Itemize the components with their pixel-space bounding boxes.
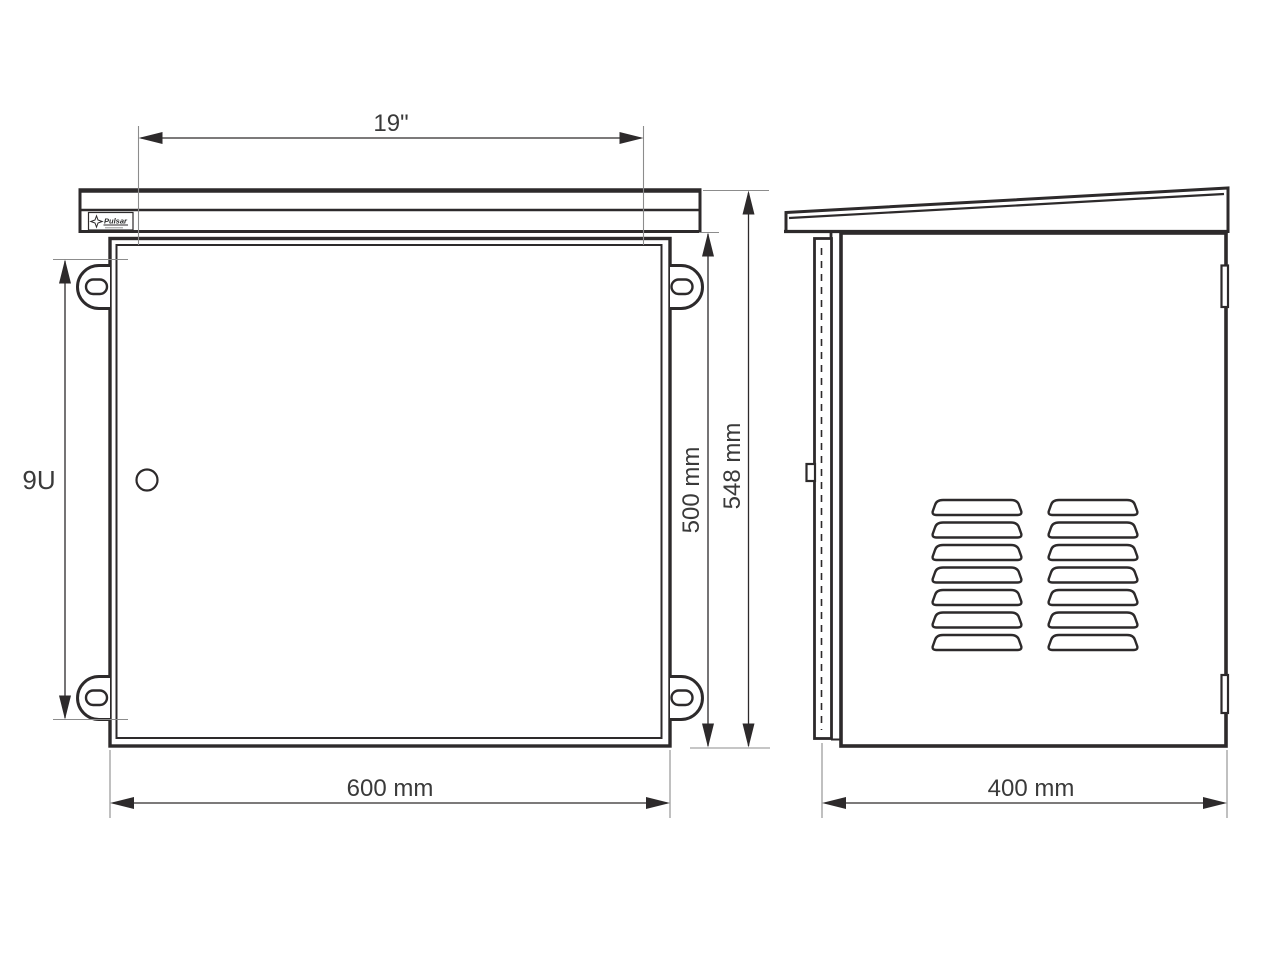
side-door-edge [815, 239, 832, 739]
arrow-right-icon [1203, 797, 1227, 809]
vent-slot [1049, 545, 1138, 560]
vent-slot [1049, 613, 1138, 628]
ear-slot-bottom-left [86, 691, 107, 706]
arrow-right-icon [646, 797, 670, 809]
arrow-up-icon [702, 233, 714, 257]
vent-slot [933, 590, 1022, 605]
label-rack-units: 9U [22, 465, 55, 495]
ear-slot-top-right [672, 280, 693, 295]
vent-slot [933, 635, 1022, 650]
arrow-left-icon [139, 132, 163, 144]
arrow-left-icon [110, 797, 134, 809]
door-latch [807, 464, 816, 481]
enclosure-dimension-drawing: Pulsar [0, 0, 1280, 960]
side-body-outline [841, 233, 1226, 746]
side-view [784, 188, 1228, 746]
front-view: Pulsar [77, 191, 702, 747]
vent-slot [1049, 500, 1138, 515]
arrow-up-icon [743, 191, 755, 215]
vent-slot [1049, 568, 1138, 583]
label-overall-depth: 400 mm [988, 775, 1075, 802]
arrow-right-icon [620, 132, 644, 144]
vent-slot [933, 523, 1022, 538]
technical-drawing-canvas: Pulsar [0, 0, 1280, 960]
arrow-up-icon [59, 260, 71, 284]
label-door-height: 500 mm [678, 447, 705, 534]
arrow-down-icon [59, 696, 71, 720]
vent-slot [1049, 635, 1138, 650]
arrow-down-icon [702, 724, 714, 748]
logo-text: Pulsar [104, 217, 128, 226]
front-door-panel [117, 245, 662, 738]
arrow-left-icon [822, 797, 846, 809]
label-overall-width: 600 mm [347, 775, 434, 802]
vent-slot [933, 613, 1022, 628]
vent-slot [933, 545, 1022, 560]
ear-slot-bottom-right [672, 691, 693, 706]
brand-logo: Pulsar [89, 213, 134, 231]
vent-slot [933, 500, 1022, 515]
ear-slot-top-left [86, 280, 107, 295]
side-roof [786, 188, 1228, 232]
vent-slot [1049, 590, 1138, 605]
vent-slot [1049, 523, 1138, 538]
label-rack-width: 19" [373, 110, 408, 137]
rear-hinge-top [1222, 266, 1229, 308]
arrow-down-icon [743, 724, 755, 748]
vent-slot [933, 568, 1022, 583]
rear-hinge-bottom [1222, 675, 1229, 713]
door-lock-hole [137, 470, 158, 491]
label-total-height: 548 mm [719, 423, 746, 510]
